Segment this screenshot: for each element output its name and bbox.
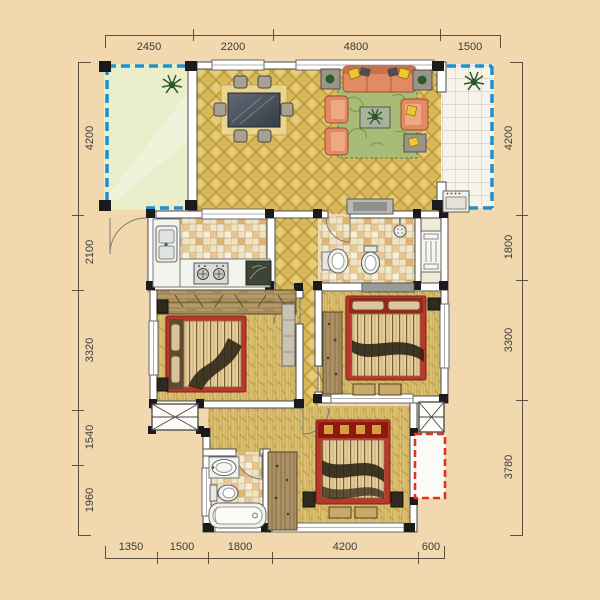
nightstand-icon [157, 378, 168, 391]
pillow-icon [171, 356, 180, 383]
toilet-icon [210, 485, 238, 501]
floor-plan-drawing [0, 0, 600, 600]
nightstand-icon [428, 298, 440, 310]
stove-icon [194, 263, 228, 284]
nightstand-icon [391, 492, 403, 507]
bed-icon [316, 420, 390, 504]
bed-icon [166, 316, 246, 392]
toilet-icon [362, 246, 380, 274]
ac-platform-icon [415, 434, 445, 498]
kitchen-sink-icon [156, 226, 177, 262]
basin-icon [209, 457, 239, 478]
refrigerator-icon [246, 261, 271, 285]
service-balcony-floor [441, 64, 494, 210]
pillow-icon [388, 301, 420, 310]
nightstand-icon [157, 300, 168, 313]
basin-icon [322, 249, 348, 273]
bench-icon [379, 384, 401, 395]
wardrobe-icon [157, 290, 296, 314]
nightstand-icon [303, 492, 315, 507]
floor-plan-canvas: 2450 2200 4800 1500 4200 2100 3320 1540 … [0, 0, 600, 600]
dining-set [214, 76, 293, 142]
pillow-icon [352, 301, 384, 310]
bench-icon [355, 507, 377, 518]
bathtub-icon [209, 503, 266, 528]
dresser-icon [282, 304, 295, 366]
bench-icon [353, 384, 375, 395]
pillow-icon [171, 324, 180, 351]
wardrobe-icon [323, 312, 342, 394]
wardrobe-icon [268, 452, 297, 530]
dresser-icon [362, 283, 414, 292]
washing-machine-icon [443, 191, 469, 212]
bench-icon [329, 507, 351, 518]
radiator-icon [421, 231, 441, 272]
bed-icon [346, 296, 426, 380]
